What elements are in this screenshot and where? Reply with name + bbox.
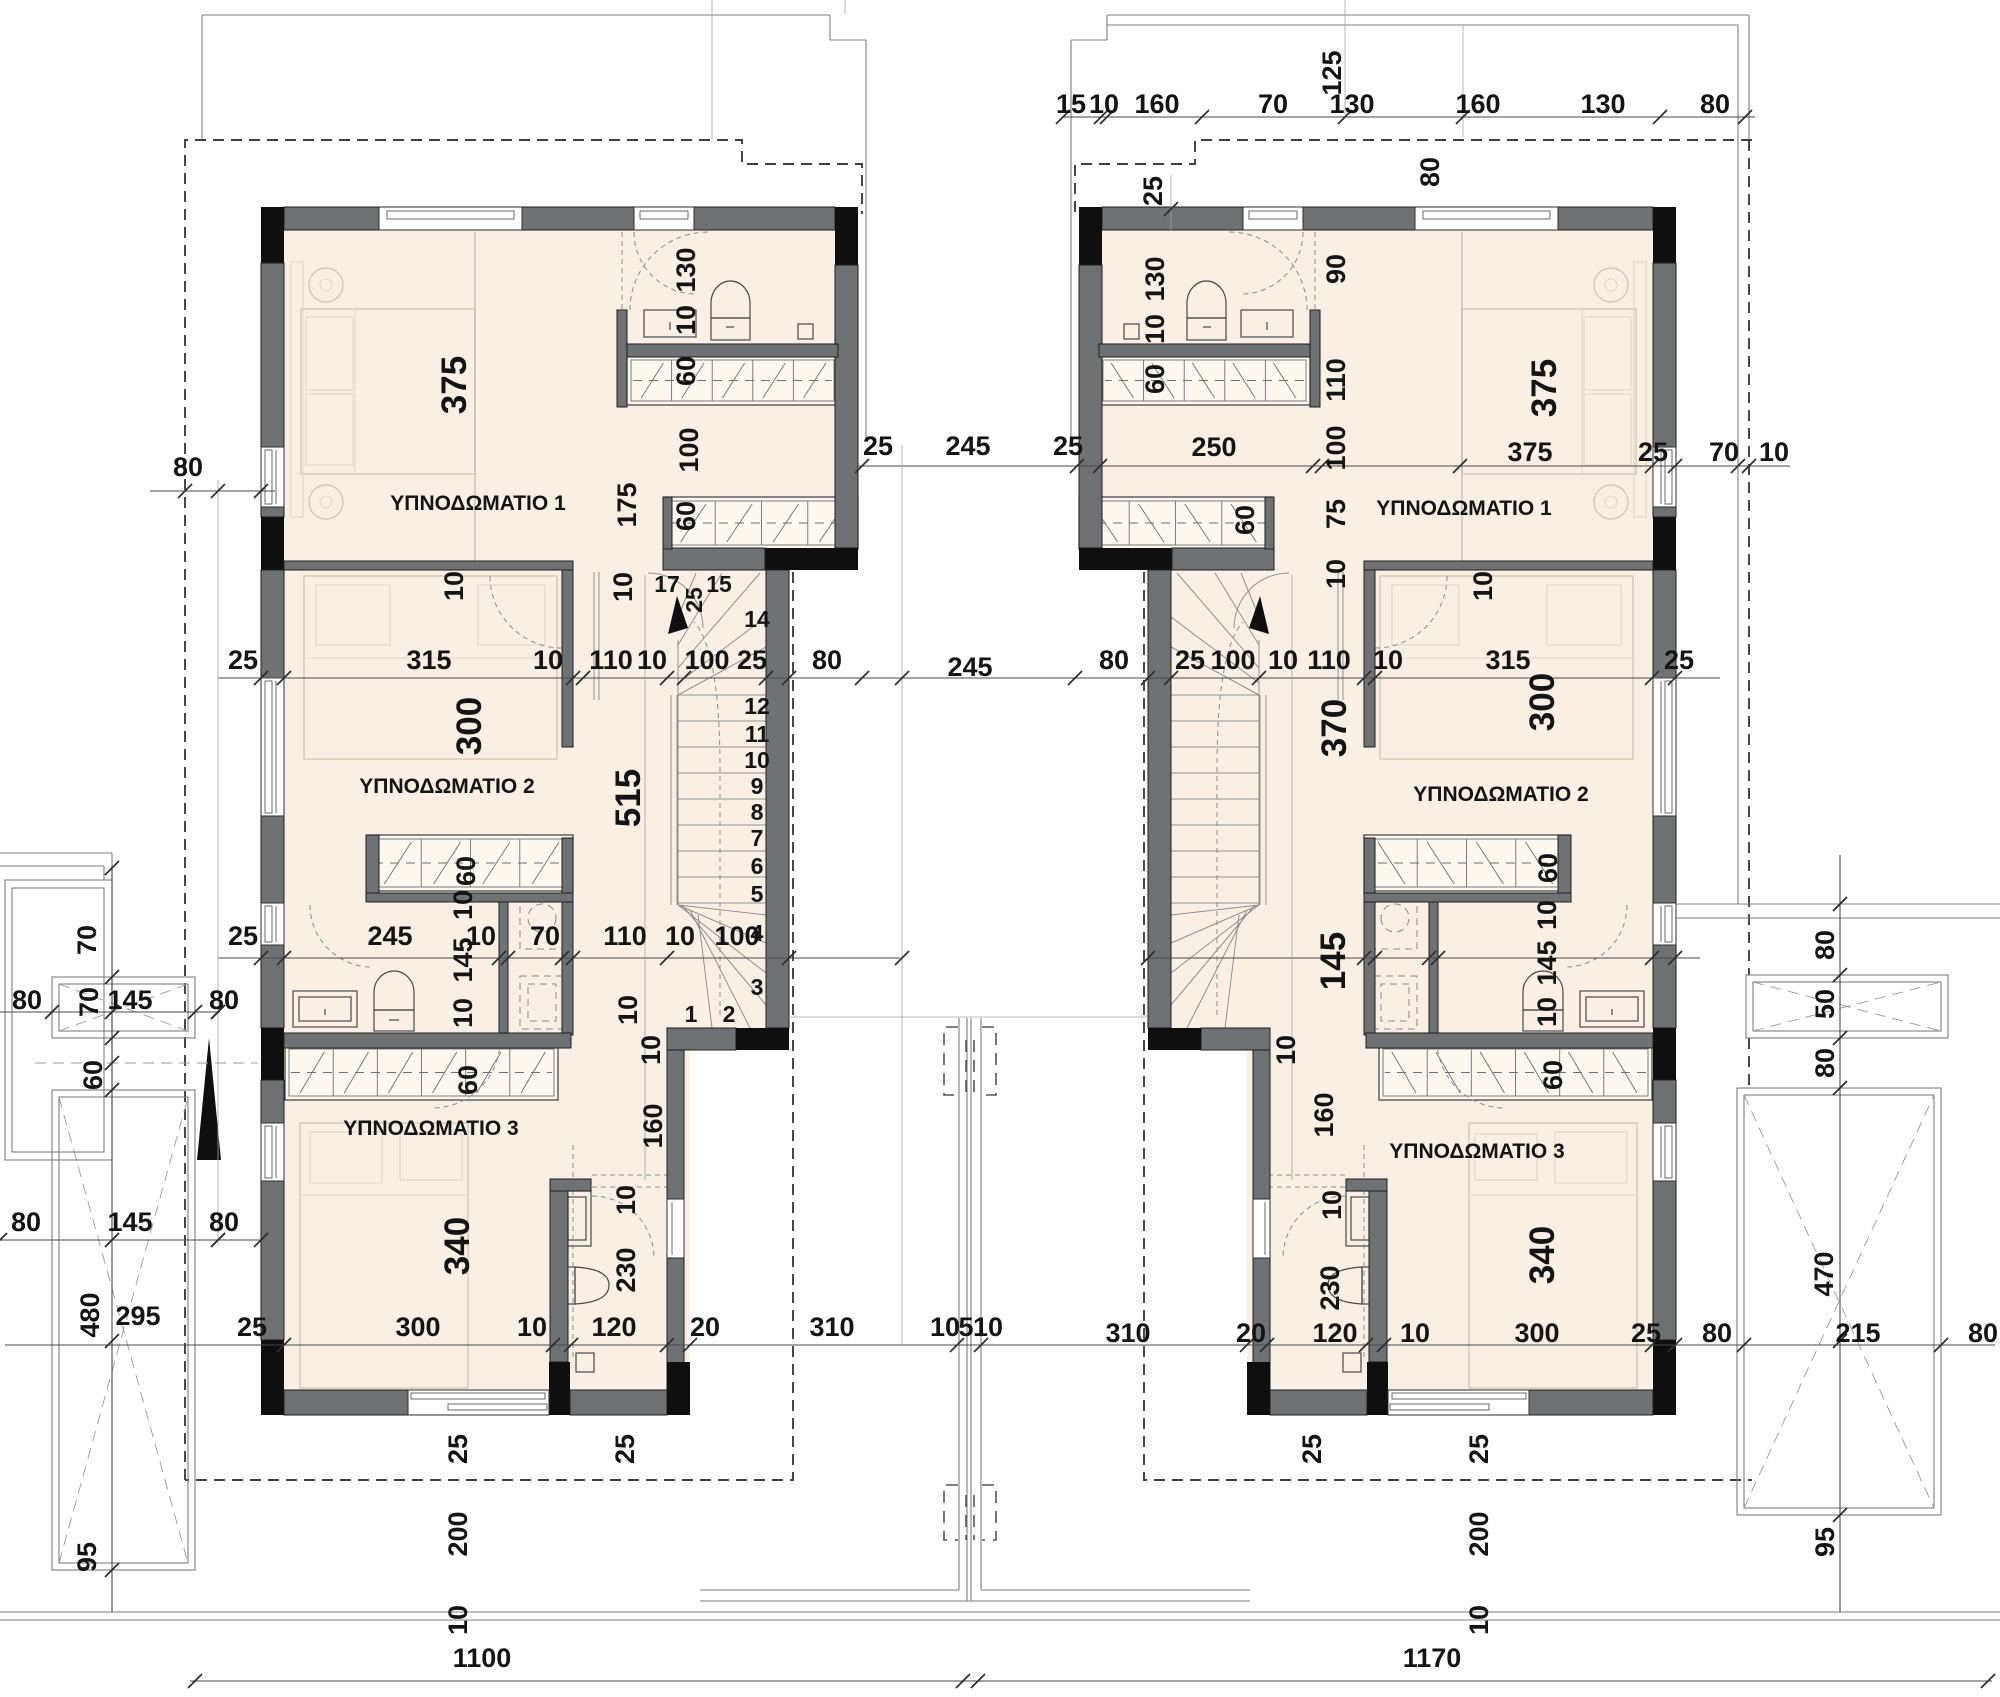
svg-text:120: 120 (1312, 1318, 1357, 1348)
svg-text:10: 10 (1400, 1318, 1430, 1348)
svg-text:15: 15 (1056, 89, 1086, 119)
svg-text:25: 25 (228, 921, 258, 951)
svg-text:10: 10 (1268, 645, 1298, 675)
svg-text:10: 10 (448, 998, 478, 1028)
svg-text:315: 315 (406, 645, 451, 675)
svg-text:340: 340 (438, 1217, 477, 1275)
svg-text:80: 80 (209, 985, 239, 1015)
svg-text:75: 75 (1321, 499, 1351, 529)
svg-text:70: 70 (1258, 89, 1288, 119)
svg-text:300: 300 (1514, 1318, 1559, 1348)
svg-text:ΥΠΝΟΔΩΜΑΤΙΟ 2: ΥΠΝΟΔΩΜΑΤΙΟ 2 (359, 775, 534, 798)
svg-text:145: 145 (107, 985, 152, 1015)
svg-text:60: 60 (1140, 364, 1170, 394)
svg-text:25: 25 (237, 1312, 267, 1342)
svg-text:90: 90 (1321, 254, 1351, 284)
svg-text:1: 1 (685, 1001, 698, 1027)
svg-text:10: 10 (636, 1035, 666, 1065)
svg-text:300: 300 (395, 1312, 440, 1342)
svg-text:300: 300 (1523, 673, 1562, 731)
svg-text:110: 110 (1307, 645, 1351, 675)
svg-text:20: 20 (1236, 1318, 1266, 1348)
svg-text:15: 15 (706, 571, 732, 597)
svg-text:25: 25 (1297, 1434, 1327, 1464)
svg-text:ΥΠΝΟΔΩΜΑΤΙΟ 3: ΥΠΝΟΔΩΜΑΤΙΟ 3 (343, 1117, 518, 1140)
svg-text:10: 10 (1089, 89, 1119, 119)
svg-text:25: 25 (228, 645, 258, 675)
svg-text:10: 10 (1373, 645, 1403, 675)
svg-text:20: 20 (690, 1312, 720, 1342)
svg-text:160: 160 (1309, 1092, 1339, 1137)
svg-text:5: 5 (958, 1312, 973, 1342)
svg-text:130: 130 (1140, 256, 1170, 301)
svg-text:70: 70 (530, 921, 560, 951)
svg-text:310: 310 (809, 1312, 854, 1342)
svg-text:10: 10 (930, 1312, 960, 1342)
svg-text:25: 25 (1138, 176, 1168, 206)
svg-text:60: 60 (671, 501, 701, 531)
svg-text:245: 245 (947, 652, 992, 682)
svg-text:100: 100 (684, 645, 729, 675)
svg-text:25: 25 (1631, 1318, 1661, 1348)
svg-text:3: 3 (751, 974, 764, 1000)
svg-text:9: 9 (751, 773, 764, 799)
svg-text:ΥΠΝΟΔΩΜΑΤΙΟ 1: ΥΠΝΟΔΩΜΑΤΙΟ 1 (390, 492, 566, 515)
svg-text:60: 60 (671, 356, 701, 386)
svg-text:10: 10 (1321, 559, 1351, 589)
svg-text:2: 2 (723, 1001, 736, 1027)
svg-text:480: 480 (75, 1292, 105, 1337)
svg-text:70: 70 (74, 987, 104, 1017)
svg-text:11: 11 (745, 721, 770, 747)
svg-text:215: 215 (1835, 1318, 1880, 1348)
svg-text:80: 80 (1810, 1048, 1840, 1078)
svg-text:70: 70 (72, 925, 102, 955)
svg-text:375: 375 (435, 356, 474, 414)
svg-text:60: 60 (451, 856, 481, 886)
svg-text:80: 80 (11, 1207, 41, 1237)
svg-text:80: 80 (173, 452, 203, 482)
svg-text:60: 60 (453, 1065, 483, 1095)
svg-text:10: 10 (1759, 437, 1789, 467)
svg-text:60: 60 (1538, 1060, 1568, 1090)
svg-text:130: 130 (1580, 89, 1625, 119)
svg-text:245: 245 (945, 431, 990, 461)
svg-text:8: 8 (751, 799, 764, 825)
svg-text:17: 17 (654, 571, 680, 597)
svg-text:340: 340 (1523, 1226, 1562, 1284)
svg-text:110: 110 (589, 645, 633, 675)
svg-text:ΥΠΝΟΔΩΜΑΤΙΟ 3: ΥΠΝΟΔΩΜΑΤΙΟ 3 (1389, 1140, 1564, 1163)
svg-text:25: 25 (443, 1434, 473, 1464)
svg-text:130: 130 (671, 247, 701, 292)
svg-text:12: 12 (744, 693, 770, 719)
svg-text:25: 25 (681, 587, 707, 613)
svg-text:5: 5 (751, 881, 764, 907)
svg-text:25: 25 (1053, 431, 1083, 461)
svg-text:10: 10 (1140, 314, 1170, 344)
svg-text:10: 10 (1271, 1035, 1301, 1065)
svg-text:25: 25 (1664, 645, 1694, 675)
svg-text:295: 295 (115, 1301, 160, 1331)
svg-text:7: 7 (751, 825, 764, 851)
svg-text:10: 10 (1532, 997, 1562, 1027)
svg-text:10: 10 (439, 571, 469, 601)
svg-text:10: 10 (973, 1312, 1003, 1342)
svg-text:4: 4 (751, 920, 764, 946)
svg-text:110: 110 (603, 921, 647, 951)
svg-text:145: 145 (1532, 940, 1562, 985)
svg-text:310: 310 (1105, 1318, 1150, 1348)
svg-text:80: 80 (12, 985, 42, 1015)
svg-text:100: 100 (674, 427, 704, 472)
svg-text:25: 25 (610, 1434, 640, 1464)
svg-text:14: 14 (744, 606, 770, 632)
svg-text:60: 60 (1230, 505, 1260, 535)
svg-text:80: 80 (1700, 89, 1730, 119)
svg-text:80: 80 (1968, 1318, 1998, 1348)
svg-text:10: 10 (637, 645, 667, 675)
svg-text:50: 50 (1810, 989, 1840, 1019)
svg-text:10: 10 (448, 890, 478, 920)
svg-text:60: 60 (1533, 853, 1563, 883)
svg-text:515: 515 (609, 769, 648, 827)
svg-text:10: 10 (1464, 1605, 1494, 1635)
svg-text:10: 10 (443, 1605, 473, 1635)
svg-text:80: 80 (209, 1207, 239, 1237)
svg-text:100: 100 (1321, 425, 1351, 470)
svg-text:110: 110 (1321, 358, 1351, 402)
svg-text:200: 200 (443, 1511, 473, 1556)
svg-text:25: 25 (737, 645, 767, 675)
svg-text:10: 10 (665, 921, 695, 951)
svg-text:80: 80 (1099, 645, 1129, 675)
svg-text:470: 470 (1809, 1251, 1839, 1296)
svg-text:160: 160 (1455, 89, 1500, 119)
svg-text:100: 100 (1210, 645, 1255, 675)
svg-text:120: 120 (591, 1312, 636, 1342)
svg-text:ΥΠΝΟΔΩΜΑΤΙΟ 2: ΥΠΝΟΔΩΜΑΤΙΟ 2 (1413, 783, 1588, 806)
svg-text:300: 300 (450, 697, 489, 755)
svg-text:370: 370 (1315, 699, 1354, 757)
svg-text:95: 95 (72, 1542, 102, 1572)
svg-text:10: 10 (1468, 571, 1498, 601)
svg-text:80: 80 (1702, 1318, 1732, 1348)
svg-text:25: 25 (863, 431, 893, 461)
svg-text:70: 70 (1709, 437, 1739, 467)
svg-text:60: 60 (78, 1060, 108, 1090)
svg-text:375: 375 (1507, 437, 1552, 467)
svg-text:245: 245 (367, 921, 412, 951)
svg-text:10: 10 (744, 747, 770, 773)
svg-text:6: 6 (751, 853, 764, 879)
svg-text:230: 230 (1315, 1265, 1345, 1310)
svg-text:250: 250 (1191, 432, 1236, 462)
svg-text:25: 25 (1638, 437, 1668, 467)
svg-text:145: 145 (1314, 932, 1353, 990)
svg-text:200: 200 (1464, 1511, 1494, 1556)
svg-text:10: 10 (1532, 900, 1562, 930)
svg-text:125: 125 (1317, 50, 1347, 95)
svg-text:25: 25 (1464, 1434, 1494, 1464)
svg-text:80: 80 (1810, 930, 1840, 960)
svg-text:10: 10 (533, 645, 563, 675)
svg-text:145: 145 (448, 937, 478, 982)
svg-text:160: 160 (638, 1103, 668, 1148)
svg-text:10: 10 (1317, 1190, 1347, 1220)
svg-text:10: 10 (611, 1185, 641, 1215)
svg-text:1100: 1100 (453, 1643, 512, 1673)
svg-text:230: 230 (611, 1247, 641, 1292)
svg-text:375: 375 (1525, 359, 1564, 417)
svg-text:10: 10 (608, 572, 638, 602)
svg-text:10: 10 (517, 1312, 547, 1342)
svg-text:145: 145 (107, 1207, 152, 1237)
svg-text:10: 10 (671, 305, 701, 335)
svg-text:80: 80 (1415, 157, 1445, 187)
svg-text:ΥΠΝΟΔΩΜΑΤΙΟ 1: ΥΠΝΟΔΩΜΑΤΙΟ 1 (1376, 497, 1552, 520)
svg-text:80: 80 (812, 645, 842, 675)
svg-text:10: 10 (613, 995, 643, 1025)
svg-text:175: 175 (612, 482, 642, 527)
svg-text:315: 315 (1485, 645, 1530, 675)
svg-text:1170: 1170 (1403, 1643, 1462, 1673)
svg-text:95: 95 (1810, 1527, 1840, 1557)
svg-text:25: 25 (1175, 645, 1205, 675)
svg-text:160: 160 (1134, 89, 1179, 119)
